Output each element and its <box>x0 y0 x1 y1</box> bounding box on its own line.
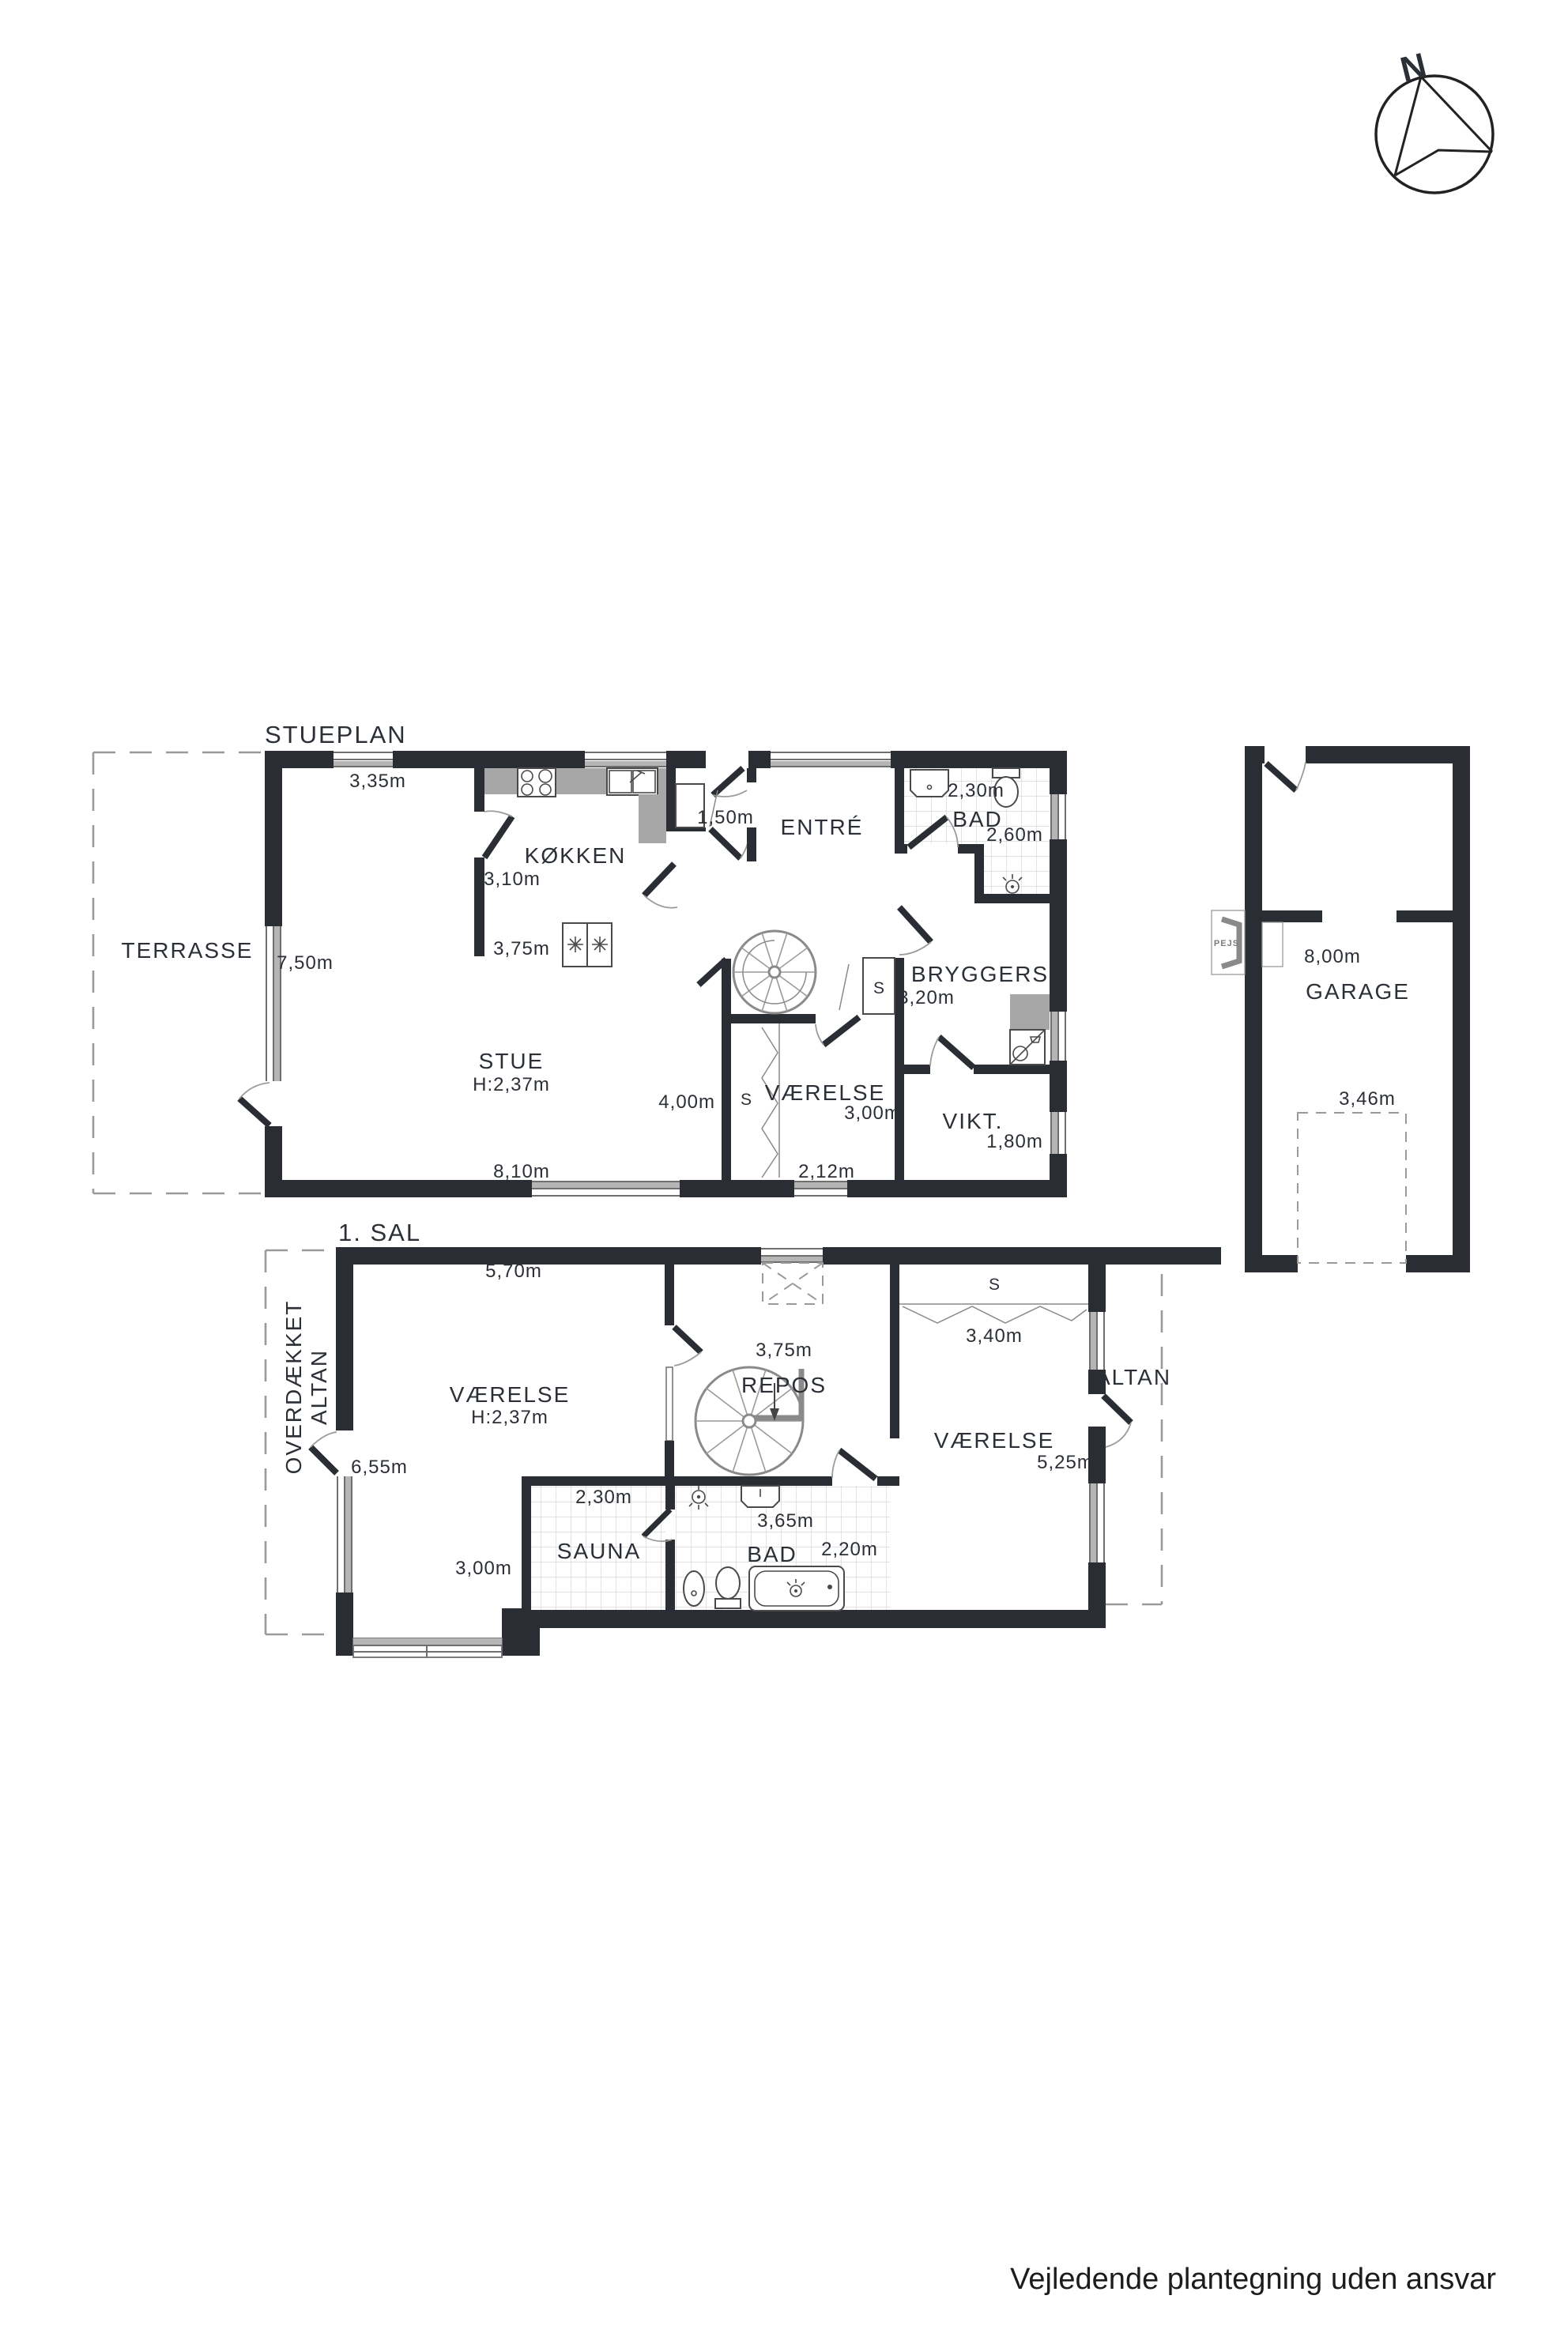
first-bad-depth-measure: 2,20m <box>821 1539 878 1560</box>
compass-rose: N <box>1376 46 1493 193</box>
washing-machine <box>1010 1030 1045 1065</box>
ground-vaerelse-window-measure: 2,12m <box>798 1161 855 1182</box>
disclaimer-note: Vejledende plantegning uden ansvar <box>1010 2263 1496 2296</box>
repos-divider <box>665 1265 701 1483</box>
terrasse-label: TERRASSE <box>122 938 254 963</box>
chimney-box <box>1262 922 1283 967</box>
car-space-outline <box>1298 1113 1406 1263</box>
repos-label: REPOS <box>741 1373 827 1397</box>
ground-floor-title: STUEPLAN <box>265 721 407 748</box>
fridge-freezer <box>563 923 612 967</box>
vaerelse-left-door-measure: 6,55m <box>351 1457 408 1478</box>
terrasse-outline <box>93 752 265 1193</box>
ground-vaerelse-label: VÆRELSE <box>765 1080 886 1105</box>
bryggers-label: BRYGGERS <box>911 962 1049 986</box>
bad-width-measure: 2,30m <box>948 780 1004 801</box>
vaerelse-right-measure: 5,25m <box>1037 1452 1094 1473</box>
floorplan-canvas: N STUEPLAN <box>0 0 1568 2352</box>
garage-label: GARAGE <box>1306 979 1410 1004</box>
vaerelse-left-bottom-measure: 3,00m <box>455 1558 512 1579</box>
garage-width-measure: 3,46m <box>1339 1088 1396 1110</box>
vindfang-measure: 1,50m <box>697 807 754 828</box>
kokken-left-measure: 3,10m <box>484 869 541 890</box>
bidet <box>684 1571 704 1606</box>
floorplan-page: N STUEPLAN <box>0 0 1568 2352</box>
ground-floor-plan: STUEPLAN <box>93 721 1067 1197</box>
vaerelse-left-top-measure: 5,70m <box>485 1261 542 1282</box>
stove <box>518 768 556 797</box>
kitchen-sink <box>607 768 658 795</box>
vaerelse-right-label: VÆRELSE <box>934 1428 1055 1453</box>
closet-stair-label: S <box>873 979 884 997</box>
ground-vaerelse-measure: 3,00m <box>844 1102 901 1124</box>
stue-depth-measure: 4,00m <box>658 1091 715 1113</box>
vikt-label: VIKT. <box>943 1109 1004 1133</box>
bryggers-measure: 3,20m <box>898 987 955 1008</box>
sink <box>741 1486 779 1507</box>
kokken-top-measure: 3,35m <box>349 771 406 792</box>
terrasse-measure: 7,50m <box>277 952 334 974</box>
first-closet-label: S <box>989 1276 1000 1294</box>
spiral-stair-ground <box>733 931 816 1013</box>
altan-label: ALTAN <box>1095 1365 1171 1389</box>
bad-depth-measure: 2,60m <box>986 824 1043 846</box>
first-floor-plan: 1. SAL OVERDÆKKET ALTAN <box>266 1219 1221 1657</box>
sink <box>910 770 948 797</box>
garage-plan: PEJS 8,00m GARAGE 3,46m <box>1212 746 1470 1272</box>
garage-depth-measure: 8,00m <box>1304 946 1361 967</box>
altan-outline <box>1106 1274 1162 1604</box>
pejs-label: PEJS <box>1214 939 1239 948</box>
kokken-label: KØKKEN <box>525 843 627 868</box>
stair-hall <box>699 931 895 1180</box>
entre-label: ENTRÉ <box>781 815 864 839</box>
kitchen-counter-return <box>639 794 666 843</box>
terrasse-door <box>239 1081 282 1126</box>
compass-north-label: N <box>1396 46 1430 89</box>
vaerelse-left-label: VÆRELSE <box>450 1382 571 1407</box>
first-bad-label: BAD <box>747 1542 797 1566</box>
toilet <box>715 1567 741 1608</box>
vaerelse-left-ceiling: H:2,37m <box>471 1407 548 1428</box>
sauna-label: SAUNA <box>557 1539 641 1563</box>
skylight <box>763 1263 823 1304</box>
kokken-bottom-measure: 3,75m <box>493 938 550 959</box>
vikt-measure: 1,80m <box>986 1131 1043 1152</box>
stue-ceiling: H:2,37m <box>473 1074 550 1095</box>
bathtub <box>749 1566 844 1611</box>
first-closet <box>899 1304 1088 1323</box>
covered-balcony-label-line1: OVERDÆKKET <box>281 1300 306 1475</box>
snowflake-icon <box>567 937 583 952</box>
stue-width-measure: 8,10m <box>493 1161 550 1182</box>
closet-vaerelse-label: S <box>741 1091 752 1109</box>
snowflake-icon <box>592 937 608 952</box>
stair-railing <box>666 1367 673 1441</box>
bryggers-counter <box>1010 994 1050 1030</box>
skylight-measure: 3,75m <box>756 1340 812 1361</box>
first-floor-title: 1. SAL <box>338 1219 421 1246</box>
covered-balcony-label-line2: ALTAN <box>307 1349 331 1425</box>
sauna-measure: 2,30m <box>575 1487 632 1508</box>
front-door <box>706 751 749 858</box>
first-closet-measure: 3,40m <box>966 1325 1023 1347</box>
first-bad-width-measure: 3,65m <box>757 1510 814 1532</box>
fireplace: PEJS <box>1212 910 1245 974</box>
stue-label: STUE <box>479 1049 545 1073</box>
